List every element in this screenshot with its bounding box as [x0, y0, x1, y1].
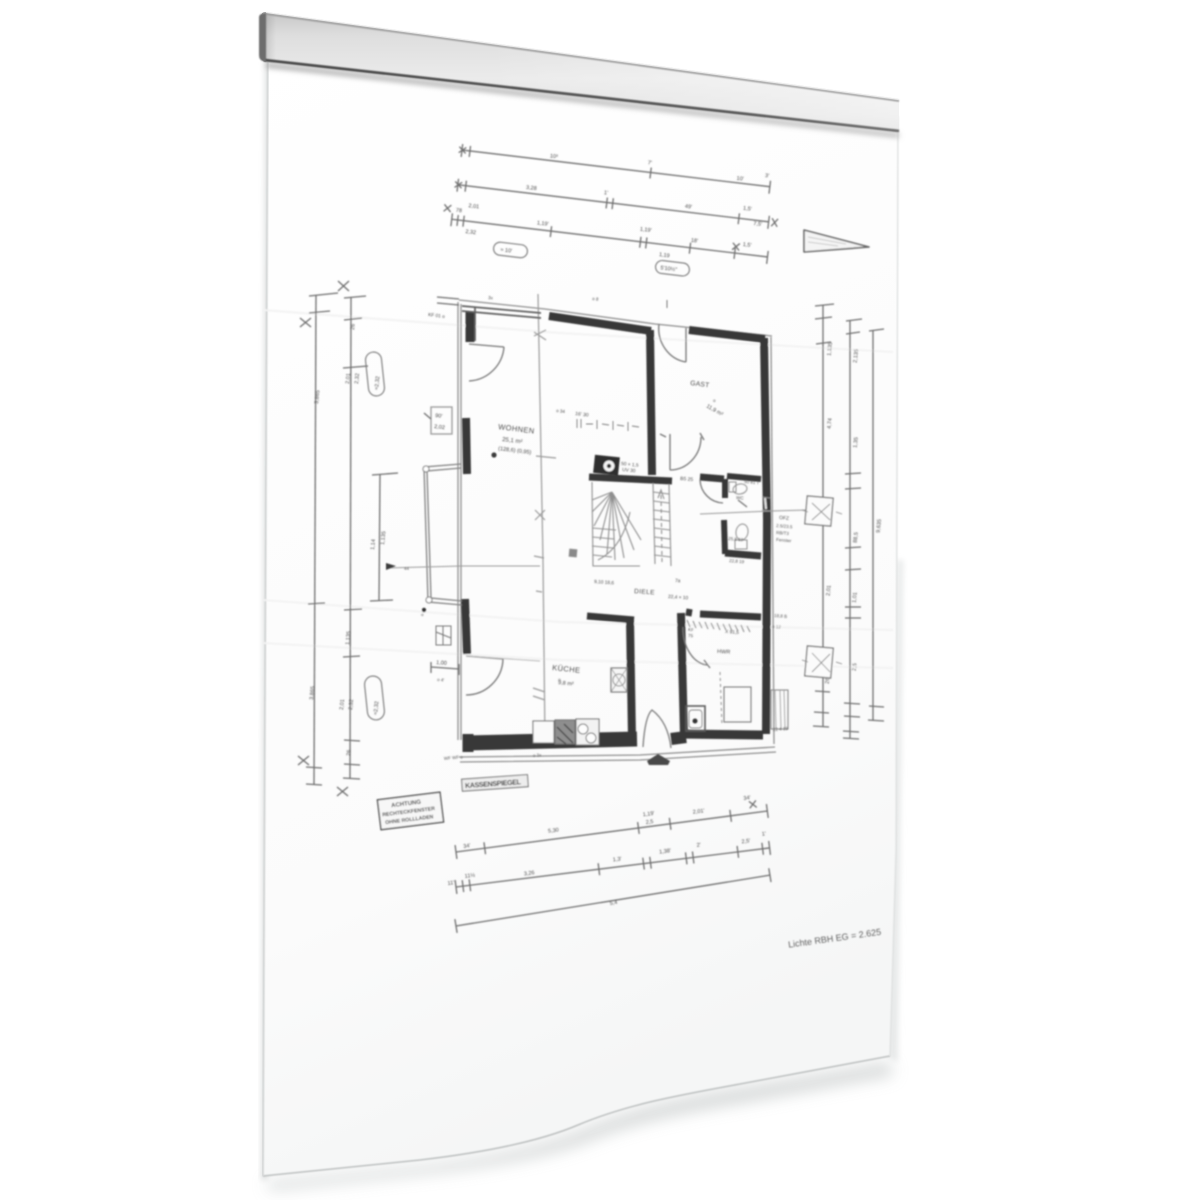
svg-text:2,32: 2,32 [348, 699, 355, 710]
svg-text:1,19: 1,19 [659, 252, 670, 259]
svg-text:2,01: 2,01 [826, 585, 833, 596]
svg-text:o 4': o 4' [437, 677, 445, 683]
svg-text:1,00: 1,00 [436, 660, 447, 667]
svg-text:2,5: 2,5 [852, 663, 859, 671]
svg-text:44: 44 [404, 566, 410, 571]
svg-text:34': 34' [743, 795, 751, 802]
svg-text:HWR: HWR [717, 649, 730, 656]
svg-text:2,32: 2,32 [465, 229, 476, 236]
svg-text:X 91,5: X 91,5 [725, 629, 740, 636]
svg-text:2,5: 2,5 [645, 819, 653, 826]
svg-text:18,8 B: 18,8 B [774, 613, 787, 619]
svg-text:10': 10' [736, 176, 744, 183]
svg-text:1,5': 1,5' [743, 206, 752, 213]
svg-text:WC: WC [736, 495, 745, 501]
svg-text:11': 11' [447, 880, 454, 887]
svg-text:2': 2' [696, 842, 701, 848]
svg-text:1': 1' [762, 831, 767, 837]
svg-text:88,5: 88,5 [853, 532, 860, 543]
svg-text:DIELE: DIELE [634, 588, 655, 596]
svg-text:1,5': 1,5' [742, 242, 751, 249]
svg-text:2,5': 2,5' [741, 838, 750, 845]
svg-text:1,3': 1,3' [613, 856, 622, 863]
svg-text:10³: 10³ [549, 153, 558, 160]
svg-text:o 12: o 12 [772, 624, 782, 630]
svg-text:18': 18' [691, 238, 699, 245]
svg-text:4,74: 4,74 [827, 418, 834, 429]
svg-text:75: 75 [688, 633, 694, 638]
svg-text:49': 49' [684, 204, 692, 211]
svg-text:3': 3' [765, 173, 770, 179]
svg-text:2,01: 2,01 [468, 203, 479, 210]
svg-text:5,4: 5,4 [609, 900, 618, 907]
svg-text:90': 90' [435, 413, 443, 420]
svg-text:3,28: 3,28 [526, 185, 537, 192]
svg-text:7a: 7a [675, 578, 681, 584]
svg-text:26: 26 [346, 749, 353, 756]
svg-text:o 8: o 8 [592, 296, 599, 302]
svg-text:2,01: 2,01 [339, 699, 346, 710]
svg-text:2,01: 2,01 [345, 373, 352, 384]
svg-text:1': 1' [604, 190, 609, 196]
svg-text:26: 26 [350, 323, 357, 330]
svg-text:34': 34' [463, 843, 471, 850]
svg-text:KF: KF [688, 627, 694, 632]
svg-text:2,32: 2,32 [354, 373, 361, 384]
svg-text:1,01: 1,01 [852, 592, 859, 603]
svg-text:11½: 11½ [464, 872, 475, 880]
svg-text:B5 25: B5 25 [680, 476, 694, 483]
svg-text:1,14: 1,14 [370, 539, 377, 550]
svg-text:OFZ: OFZ [779, 515, 789, 522]
svg-text:7,5': 7,5' [753, 221, 762, 228]
svg-text:o 3x: o 3x [533, 752, 543, 758]
svg-text:1,35: 1,35 [853, 437, 860, 448]
svg-text:78: 78 [455, 208, 462, 215]
svg-text:7': 7' [647, 160, 652, 166]
